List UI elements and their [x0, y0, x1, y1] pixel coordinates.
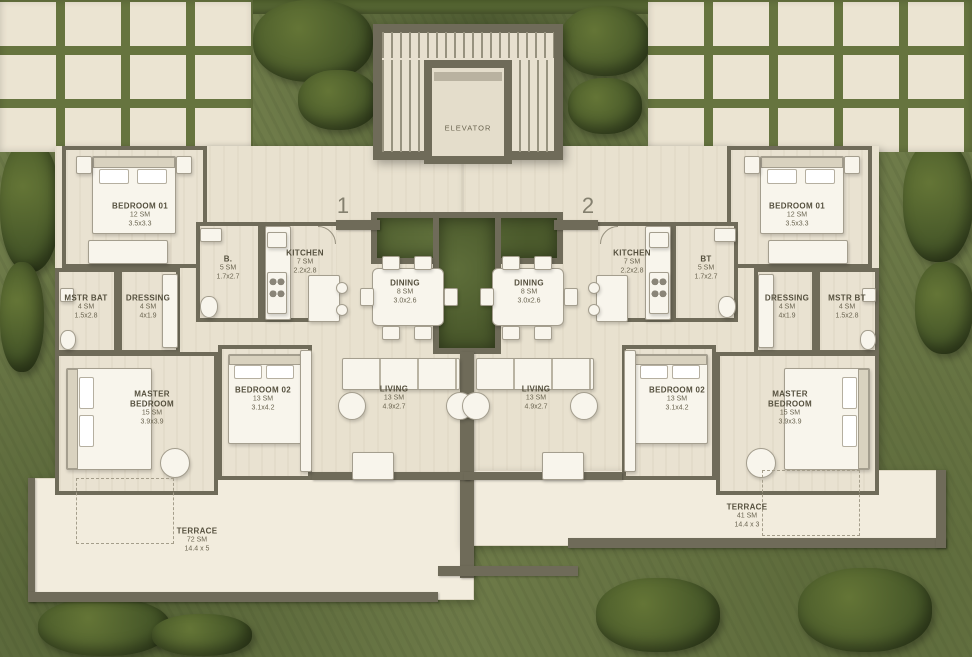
chair — [588, 282, 600, 294]
wardrobe — [768, 240, 848, 264]
toilet — [60, 330, 76, 350]
pillow — [767, 169, 797, 184]
hob — [649, 272, 669, 314]
coffee-table — [542, 452, 584, 480]
room-label: BEDROOM 02 13 SM 3.1x4.2 — [649, 385, 705, 413]
room-label: MASTER BEDROOM 15 SM 3.9x3.9 — [118, 389, 186, 427]
wardrobe — [624, 350, 636, 472]
tree — [0, 140, 60, 272]
room-label: LIVING 13 SM 4.9x2.7 — [522, 384, 550, 412]
tree — [253, 0, 373, 82]
sink — [714, 228, 736, 242]
tree — [152, 614, 252, 656]
paving-tiles — [648, 0, 972, 152]
sink — [200, 228, 222, 242]
room-label: TERRACE 41 SM 14.4 x 3 — [727, 502, 768, 530]
armchair — [338, 392, 366, 420]
pillow — [672, 365, 700, 379]
site-plan: ELEVATOR — [0, 0, 972, 657]
pillow — [234, 365, 262, 379]
tree — [915, 262, 972, 354]
chair — [588, 304, 600, 316]
pillow — [79, 415, 94, 447]
paving-tiles — [0, 0, 253, 152]
terrace-wall — [438, 566, 578, 576]
armchair — [160, 448, 190, 478]
chair — [502, 256, 520, 270]
tree — [0, 262, 44, 372]
unit-number-2: 2 — [582, 193, 594, 219]
coffee-table — [352, 452, 394, 480]
chair — [414, 256, 432, 270]
chair — [360, 288, 374, 306]
chair — [502, 326, 520, 340]
tree — [903, 140, 972, 262]
tree — [798, 568, 932, 652]
pillow — [266, 365, 294, 379]
chair — [414, 326, 432, 340]
pillow — [805, 169, 835, 184]
chair — [534, 326, 552, 340]
terrace-boundary — [76, 478, 174, 544]
entry-wall — [554, 220, 598, 230]
entry-wall — [336, 220, 380, 230]
room-label: BEDROOM 01 12 SM 3.5x3.3 — [769, 201, 825, 229]
tree — [298, 70, 378, 130]
room-label: MASTER BEDROOM 15 SM 3.9x3.9 — [756, 389, 824, 427]
chair — [336, 304, 348, 316]
room-label: KITCHEN 7 SM 2.2x2.8 — [286, 248, 324, 276]
armchair — [570, 392, 598, 420]
room-label: LIVING 13 SM 4.9x2.7 — [380, 384, 408, 412]
elevator-door — [434, 72, 502, 81]
tree — [38, 598, 170, 656]
chair — [480, 288, 494, 306]
pillow — [842, 415, 857, 447]
headboard — [761, 157, 843, 168]
chair — [382, 326, 400, 340]
elevator-label: ELEVATOR — [445, 124, 492, 133]
party-wall — [460, 352, 474, 578]
chair — [336, 282, 348, 294]
armchair — [462, 392, 490, 420]
room-label: MSTR BT 4 SM 1.5x2.8 — [828, 293, 866, 321]
terrace-boundary — [762, 470, 860, 536]
tree — [560, 6, 650, 76]
pillow — [79, 377, 94, 409]
toilet — [860, 330, 876, 350]
kitchen-sink — [649, 232, 669, 248]
chair — [564, 288, 578, 306]
terrace-wall — [28, 592, 438, 602]
wardrobe — [300, 350, 312, 472]
headboard — [635, 355, 707, 365]
stairs — [510, 60, 554, 152]
chair — [534, 256, 552, 270]
nightstand — [176, 156, 192, 174]
hob — [267, 272, 287, 314]
headboard — [858, 369, 869, 469]
room-label: DRESSING 4 SM 4x1.9 — [126, 293, 170, 321]
room-label: DINING 8 SM 3.0x2.6 — [390, 278, 420, 306]
nightstand — [76, 156, 92, 174]
nightstand — [744, 156, 760, 174]
toilet — [718, 296, 736, 318]
pillow — [99, 169, 129, 184]
room-label: TERRACE 72 SM 14.4 x 5 — [177, 526, 218, 554]
chair — [444, 288, 458, 306]
kitchen-sink — [267, 232, 287, 248]
terrace-wall — [936, 470, 946, 548]
chair — [382, 256, 400, 270]
room-label: B. 5 SM 1.7x2.7 — [217, 254, 240, 282]
headboard — [93, 157, 175, 168]
room-label: KITCHEN 7 SM 2.2x2.8 — [613, 248, 651, 276]
pillow — [640, 365, 668, 379]
headboard — [229, 355, 301, 365]
room-label: MSTR BAT 4 SM 1.5x2.8 — [64, 293, 107, 321]
stairs — [382, 32, 554, 58]
tree — [568, 78, 642, 134]
pillow — [137, 169, 167, 184]
tree — [596, 578, 720, 652]
headboard — [67, 369, 78, 469]
toilet — [200, 296, 218, 318]
terrace-wall — [568, 538, 946, 548]
nightstand — [844, 156, 860, 174]
pillow — [842, 377, 857, 409]
terrace-wall — [28, 478, 35, 602]
stairs — [382, 60, 426, 152]
wardrobe — [88, 240, 168, 264]
island-table — [308, 275, 340, 322]
room-label: DINING 8 SM 3.0x2.6 — [514, 278, 544, 306]
room-label: BT 5 SM 1.7x2.7 — [695, 254, 718, 282]
room-label: BEDROOM 01 12 SM 3.5x3.3 — [112, 201, 168, 229]
unit-number-1: 1 — [337, 193, 349, 219]
room-label: BEDROOM 02 13 SM 3.1x4.2 — [235, 385, 291, 413]
island-table — [596, 275, 628, 322]
room-label: DRESSING 4 SM 4x1.9 — [765, 293, 809, 321]
